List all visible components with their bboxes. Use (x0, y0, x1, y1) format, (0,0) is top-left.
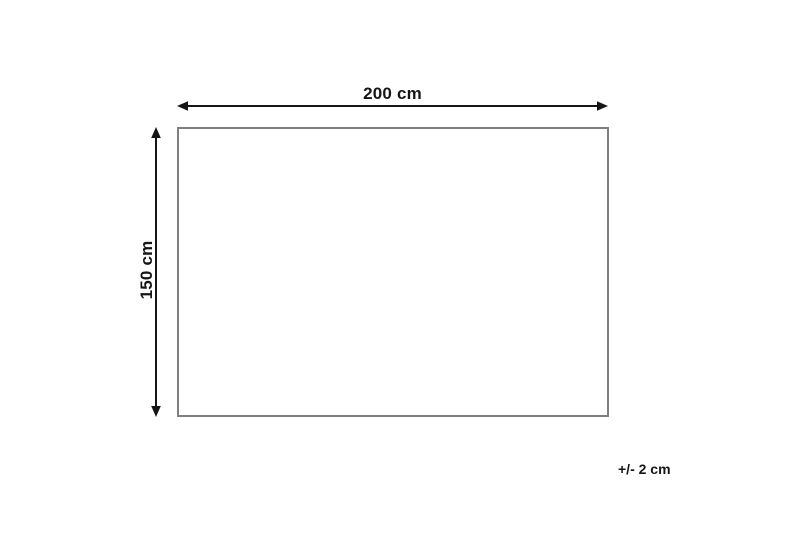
product-outline (177, 127, 609, 417)
dimension-diagram: 200 cm 150 cm +/- 2 cm (0, 0, 800, 533)
tolerance-label: +/- 2 cm (618, 461, 671, 477)
height-dimension-arrow-icon (150, 127, 162, 417)
width-dimension-arrow-icon (177, 100, 608, 112)
